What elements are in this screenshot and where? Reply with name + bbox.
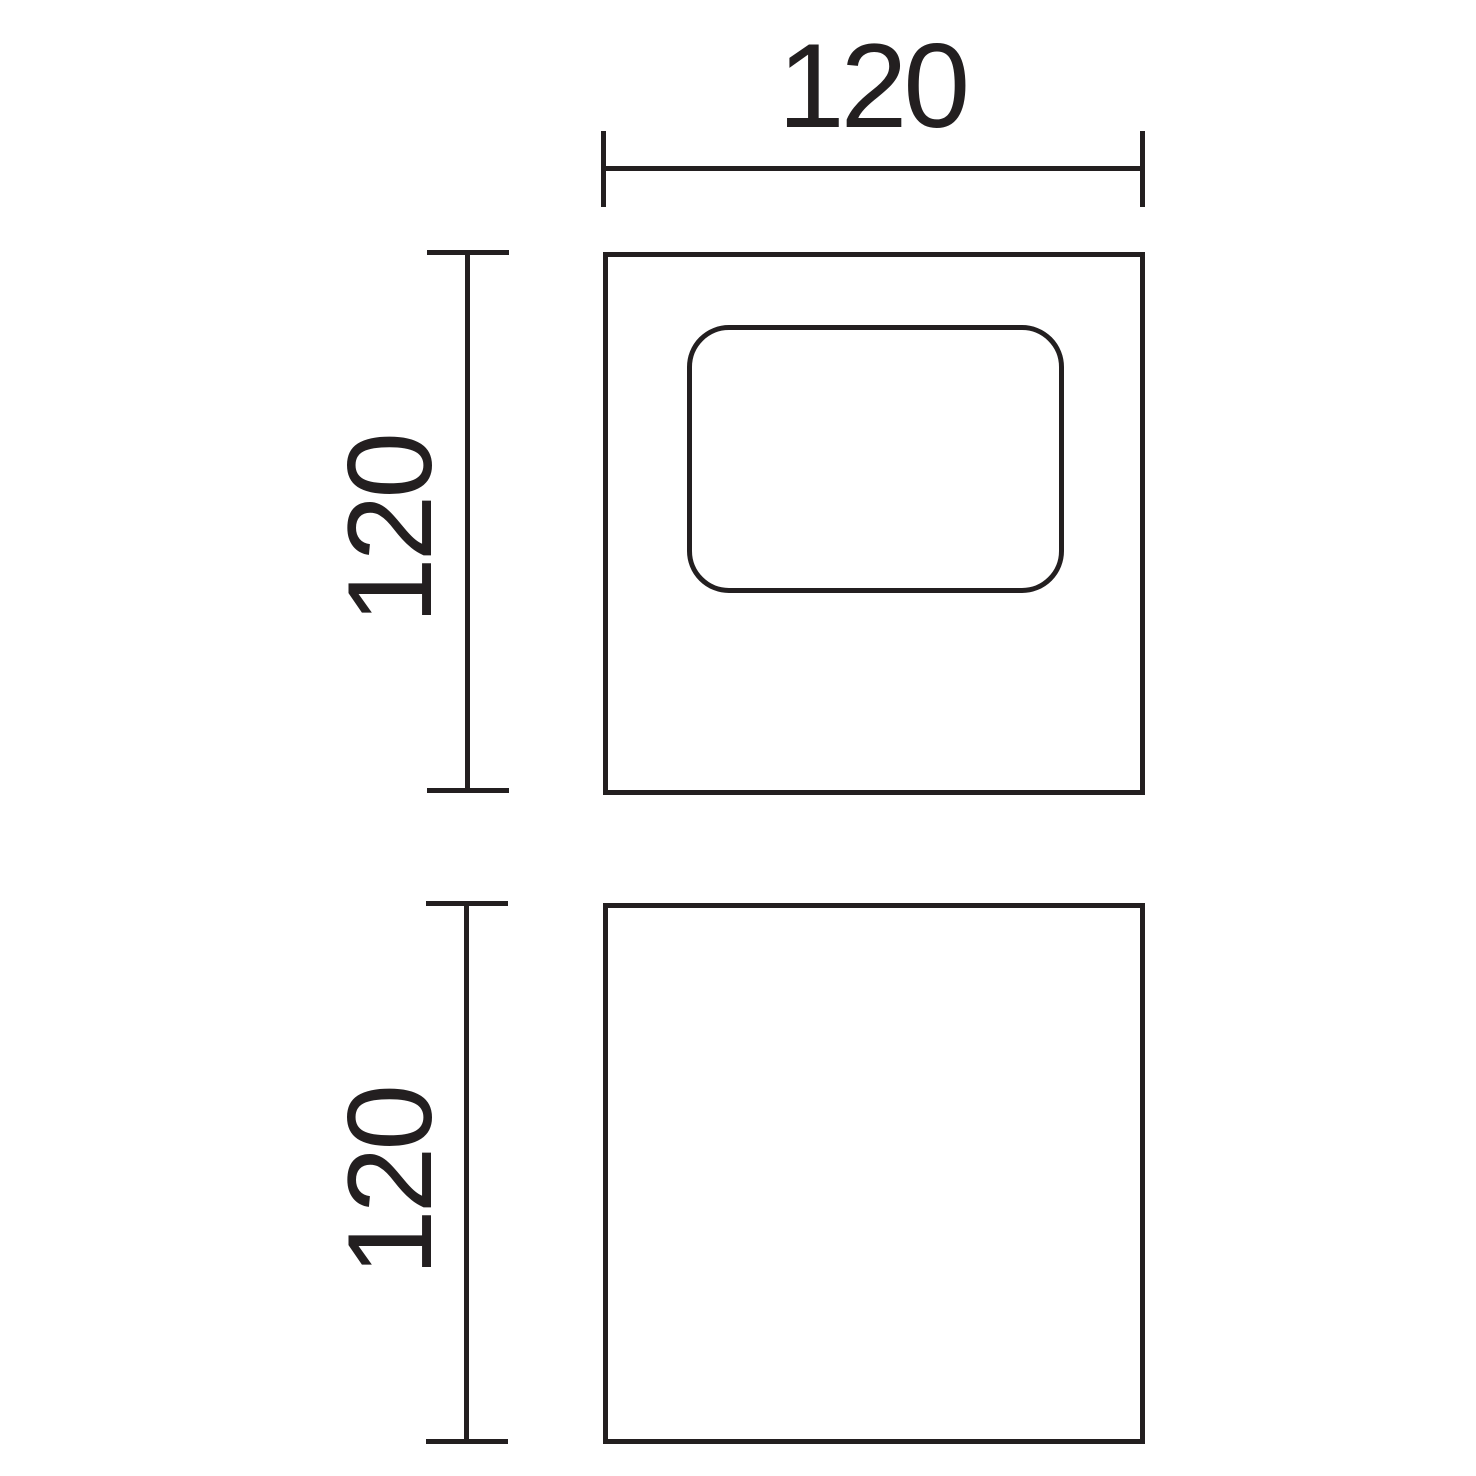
- front-height-dimension-label: 120: [330, 436, 450, 624]
- front-height-dimension-tick-top: [427, 250, 509, 255]
- side-height-dimension-tick-top: [426, 901, 508, 906]
- side-view-outline: [603, 903, 1145, 1444]
- side-height-dimension-line: [464, 903, 469, 1443]
- side-height-dimension-tick-bottom: [426, 1439, 508, 1444]
- side-height-dimension-label: 120: [330, 1088, 450, 1276]
- front-height-dimension-tick-bottom: [427, 788, 509, 793]
- top-width-dimension-line: [603, 166, 1144, 171]
- top-width-dimension-tick-right: [1140, 131, 1145, 207]
- top-width-dimension-tick-left: [601, 131, 606, 207]
- drawing-canvas: 120 120 120: [0, 0, 1476, 1476]
- front-height-dimension-line: [465, 252, 470, 792]
- front-view-window-outline: [687, 325, 1064, 593]
- top-width-dimension-label: 120: [600, 26, 1144, 146]
